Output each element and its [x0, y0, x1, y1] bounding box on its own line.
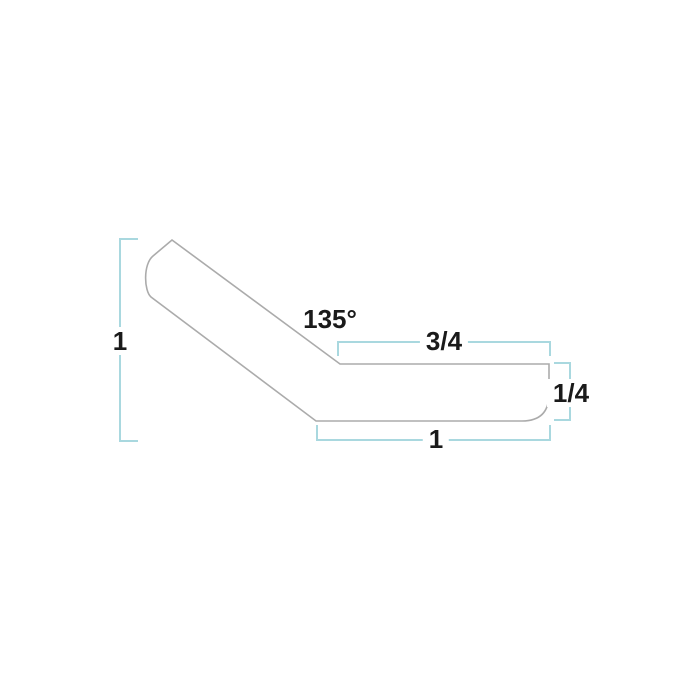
- dim-top-width-label: 3/4: [420, 327, 468, 355]
- dim-height-label: 1: [107, 327, 133, 355]
- dim-bottom-width-label: 1: [423, 425, 449, 453]
- diagram-canvas: 1 135° 3/4 1/4 1: [0, 0, 700, 700]
- angle-label: 135°: [300, 305, 360, 333]
- profile-drawing: [0, 0, 700, 700]
- dim-thickness-label: 1/4: [547, 379, 595, 407]
